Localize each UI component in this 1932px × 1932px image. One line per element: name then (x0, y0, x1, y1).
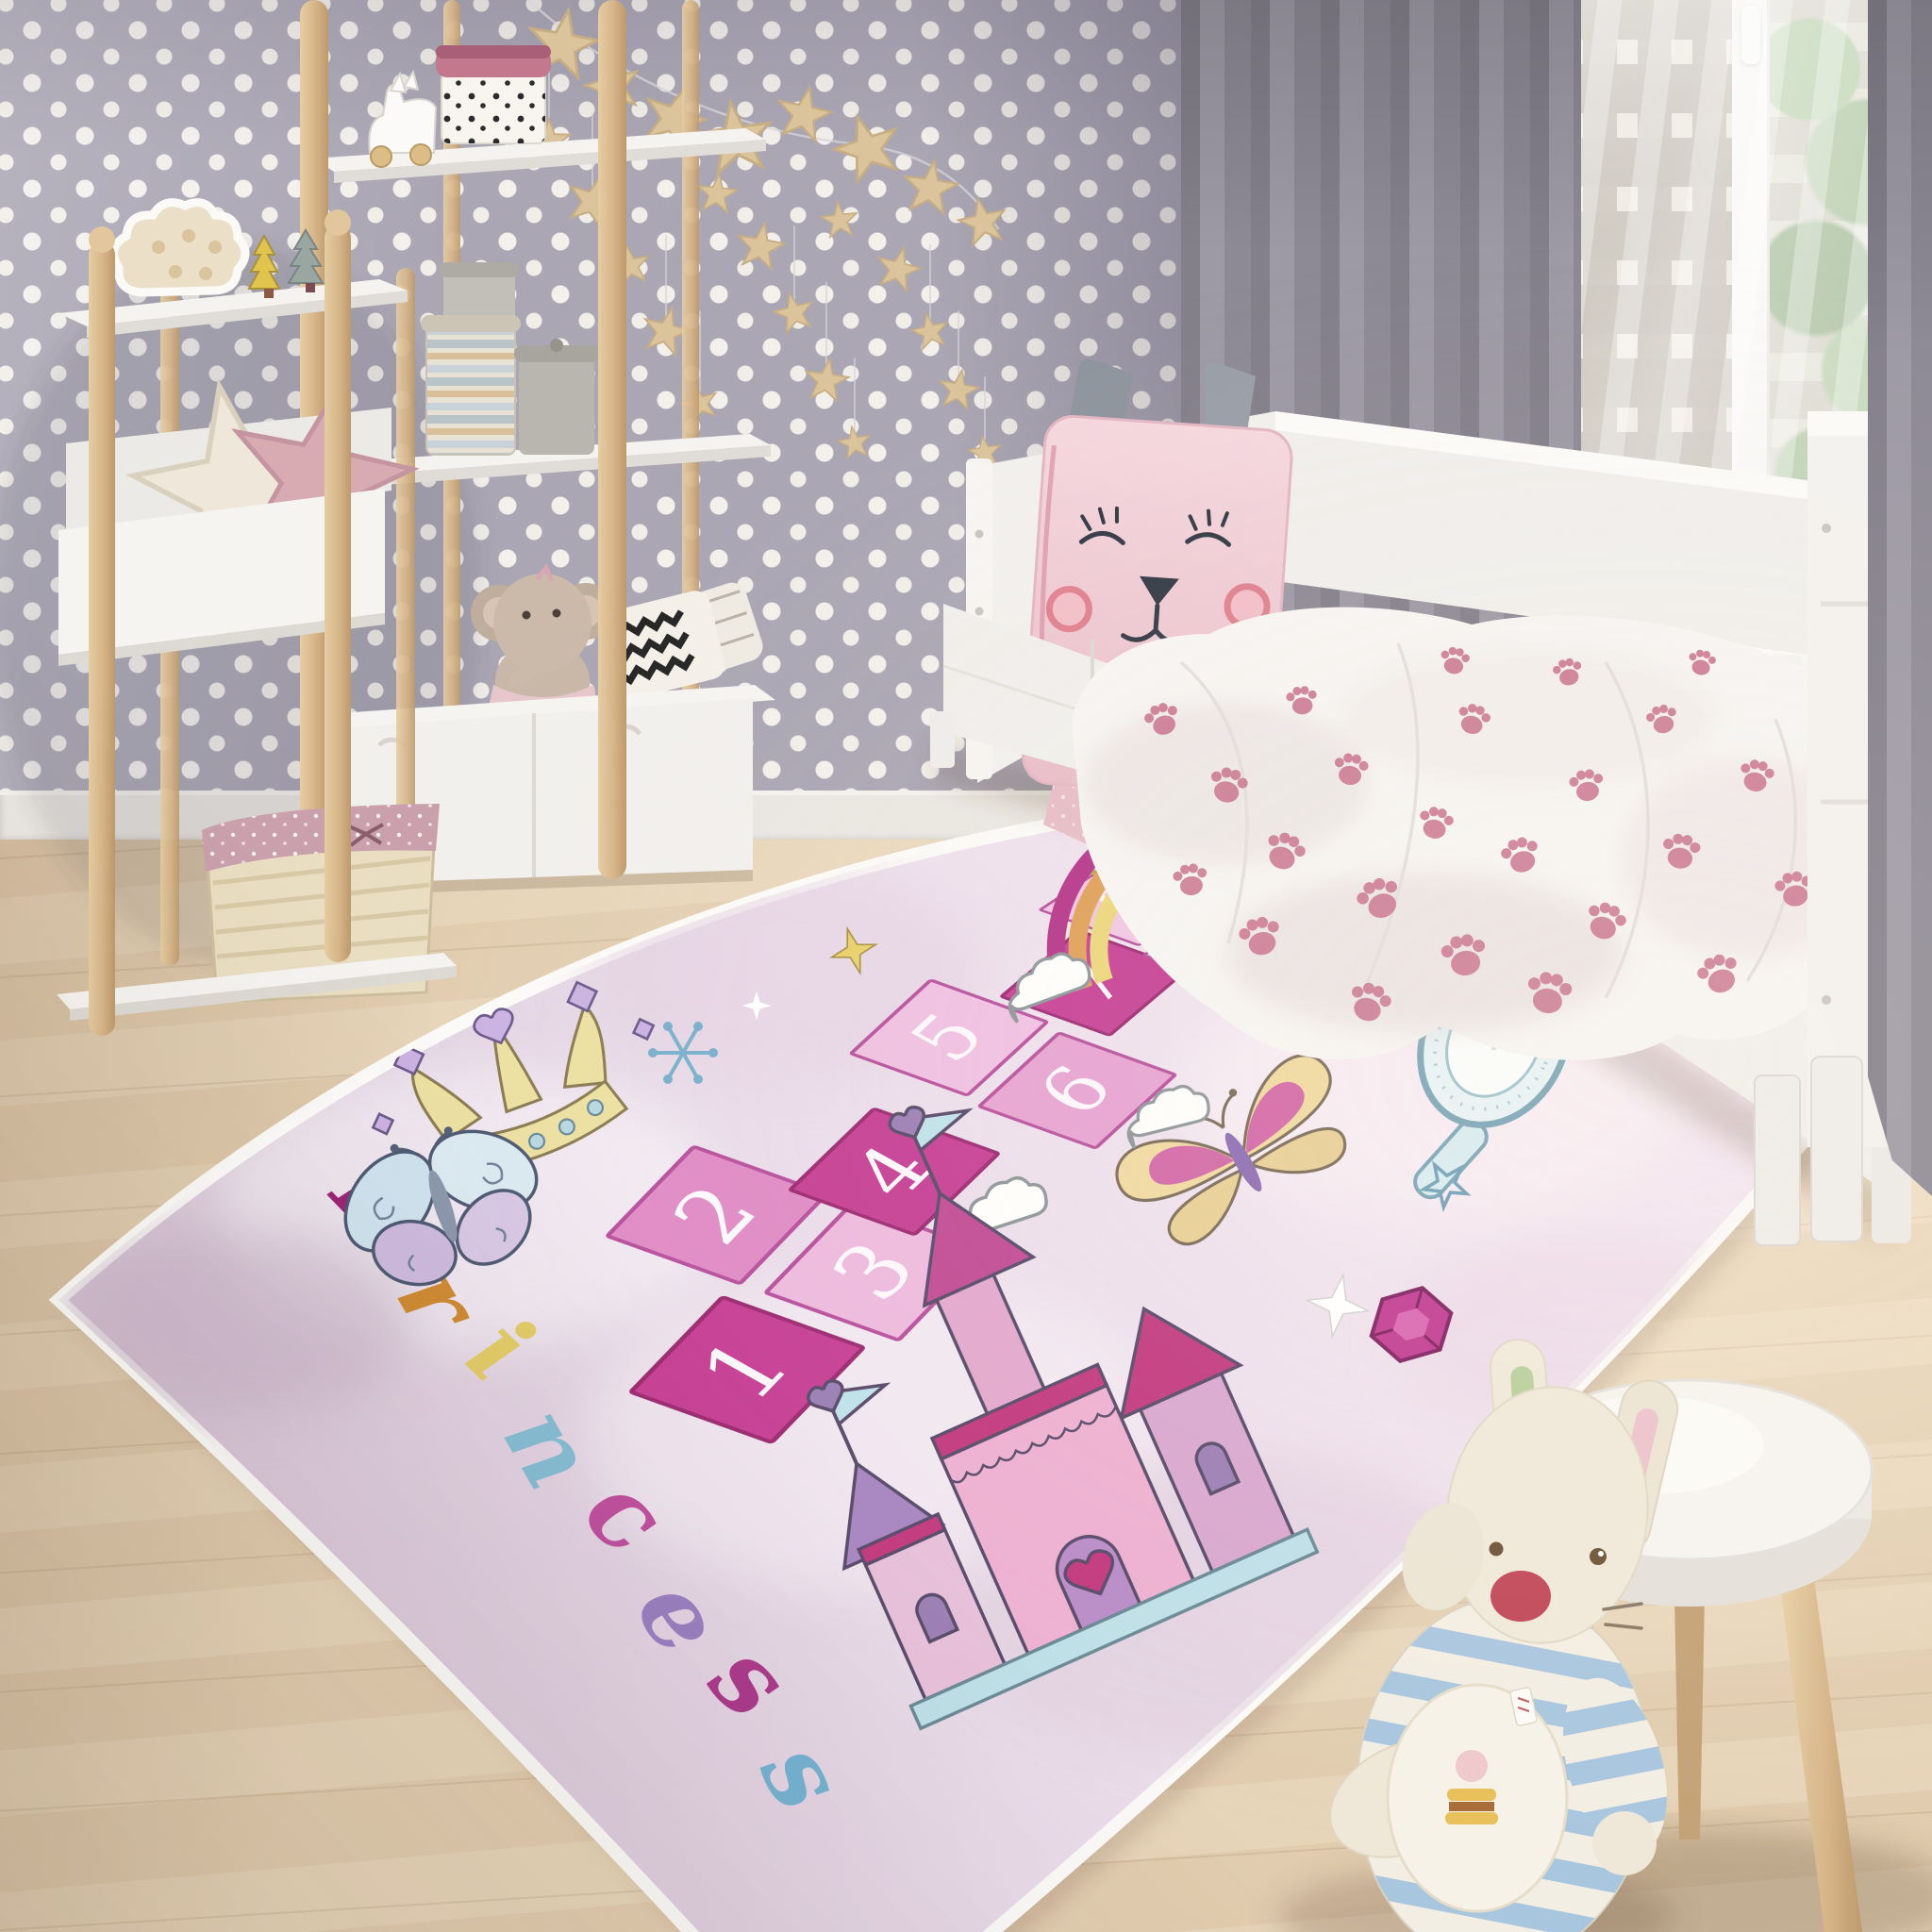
bunny-plush (1311, 1338, 1685, 1932)
kids-room-photo: 1 2 3 4 5 (0, 0, 1932, 1932)
bunny-nose (1491, 1571, 1551, 1622)
bunny-paw (1592, 1811, 1657, 1875)
bunny-whiskers (1604, 1604, 1641, 1628)
stool-bunny-layer (0, 0, 1932, 1932)
bunny-eye (1590, 1548, 1607, 1565)
bunny-eye (1490, 1542, 1504, 1557)
